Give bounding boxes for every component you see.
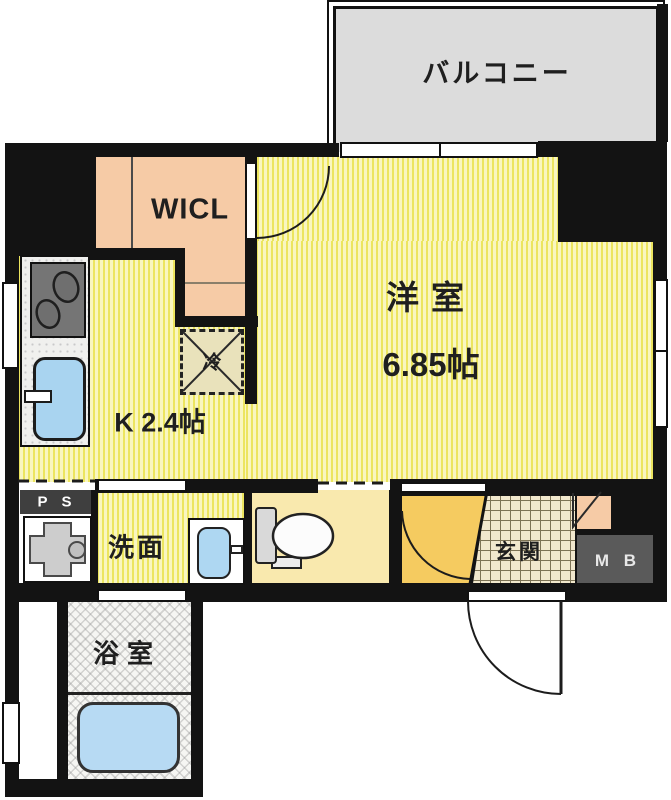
meter-box-label: M B: [595, 551, 641, 571]
refrigerator-label: 冷: [202, 348, 221, 375]
wall-left-outer: [5, 143, 19, 794]
window-mullion: [656, 350, 666, 352]
wall-right-top: [657, 4, 668, 142]
balcony-window: [340, 142, 538, 158]
wall-bath-bottom: [5, 779, 203, 797]
wicl-shelf-line: [183, 282, 245, 284]
kitchen-label: K 2.4帖: [114, 401, 206, 440]
toilet-tank-icon: [255, 507, 277, 564]
washroom-label: 洗面: [108, 528, 166, 565]
wall-bath-right: [191, 600, 203, 781]
wall-washroom-left: [91, 490, 98, 585]
western-room-label: 洋室: [386, 271, 476, 319]
stove-icon: [30, 262, 86, 338]
wicl-divider-line: [131, 156, 133, 250]
balcony-label: バルコニー: [422, 52, 571, 91]
room-side-window: [654, 279, 668, 428]
washing-machine-pan: [23, 516, 92, 583]
faucet-icon: [24, 390, 52, 403]
wall-bath-left: [57, 600, 68, 781]
bathtub-icon: [77, 702, 180, 773]
shoe-box-area: [577, 493, 611, 529]
bathroom-window: [2, 702, 20, 764]
western-room-size-label: 6.85帖: [382, 338, 479, 386]
wicl-label: WICL: [151, 194, 229, 227]
entry-door-arc: [468, 601, 561, 694]
western-room-floor-upper: [257, 156, 558, 242]
floor-plan: バルコニー WICL 洋室 6.85帖 K 2.4帖 冷 P S 洗面 玄関 M…: [0, 0, 671, 800]
wall-corner-mass: [558, 141, 667, 242]
window-mullion: [439, 144, 441, 156]
bathroom-label: 浴室: [93, 634, 161, 671]
wicl-door-opening: [245, 164, 257, 238]
washbasin-icon: [197, 527, 231, 579]
entrance-label: 玄関: [495, 536, 543, 566]
wall-closet-bottom: [175, 316, 258, 327]
kitchen-side-window: [2, 282, 19, 369]
washroom-sliding-door: [97, 479, 187, 492]
pipe-space-label: P S: [38, 494, 77, 511]
wall-wicl-bottom: [88, 248, 185, 260]
wall-washroom-toilet: [244, 490, 252, 585]
bathroom-divider-line: [68, 692, 192, 695]
bathroom-sliding-door: [97, 589, 187, 602]
hall-door-opening: [400, 482, 487, 493]
wall-closet-left: [175, 256, 185, 318]
entry-door-threshold: [467, 590, 567, 602]
basin-faucet-icon: [230, 545, 243, 554]
wall-toilet-hall: [389, 490, 402, 587]
